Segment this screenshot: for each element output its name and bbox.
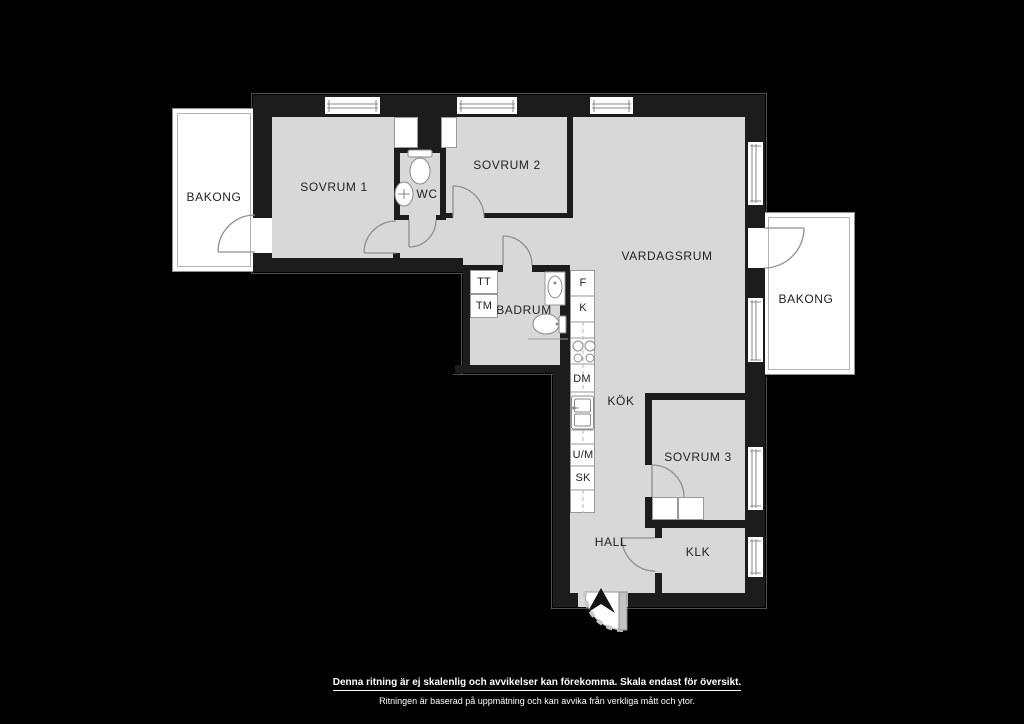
balcony-door-opening [253, 218, 272, 253]
wall [567, 117, 573, 218]
room-label-sovrum1: SOVRUM 1 [300, 180, 367, 194]
appliance-label-tm: TM [476, 300, 492, 312]
room-label-wc: WC [416, 187, 437, 201]
room-label-kok: KÖK [607, 394, 634, 408]
wall [436, 215, 446, 220]
wardrobe-box [652, 497, 678, 520]
appliance-label-f: F [580, 277, 587, 289]
room-label-bakong-right: BAKONG [779, 292, 834, 306]
wall [645, 393, 748, 400]
outline [251, 93, 767, 94]
outline [461, 273, 462, 374]
outline [551, 608, 767, 609]
window [748, 142, 763, 205]
wall [553, 373, 570, 607]
wall [253, 258, 463, 272]
appliance-label-um: U/M [573, 449, 594, 461]
wall [645, 393, 652, 465]
wall [645, 520, 748, 528]
room-label-bakong-left: BAKONG [187, 190, 242, 204]
shaft-box [441, 117, 457, 148]
room-label-badrum: BADRUM [496, 303, 552, 317]
room-label-hall: HALL [595, 535, 627, 549]
disclaimer: Denna ritning är ej skalenlig och avvike… [317, 672, 757, 709]
room-label-sovrum3: SOVRUM 3 [664, 450, 731, 464]
room-label-sovrum2: SOVRUM 2 [473, 158, 540, 172]
entrance-opening [578, 593, 628, 607]
wall [394, 148, 446, 153]
wall [560, 265, 570, 373]
outline [551, 374, 552, 609]
wall [394, 215, 409, 220]
appliance-label-k: K [579, 302, 587, 314]
wall [418, 117, 441, 148]
outline [766, 377, 767, 608]
window [457, 97, 517, 114]
window [590, 97, 633, 114]
outline [766, 93, 767, 213]
disclaimer-line1: Denna ritning är ej skalenlig och avvike… [333, 676, 742, 691]
wall [463, 265, 470, 373]
wall [655, 528, 662, 538]
appliance-label-dm: DM [573, 373, 591, 385]
floor-plan: BAKONG SOVRUM 1 WC SOVRUM 2 VARDAGSRUM B… [0, 0, 1024, 724]
outline [251, 273, 463, 274]
wall [394, 148, 400, 220]
wall [455, 365, 570, 373]
room-label-vardagsrum: VARDAGSRUM [621, 249, 712, 263]
window [748, 447, 763, 510]
balcony-door-opening [748, 228, 765, 268]
wardrobe-box [678, 497, 704, 520]
room-label-klk: KLK [686, 545, 710, 559]
shaft-box [394, 117, 418, 148]
wall [484, 213, 573, 218]
window [325, 97, 380, 114]
wall [440, 148, 446, 220]
disclaimer-line2: Ritningen är baserad på uppmätning och k… [379, 696, 695, 706]
wall [446, 213, 453, 218]
window [748, 298, 763, 362]
wall [655, 573, 662, 593]
outline [453, 374, 553, 375]
appliance-label-sk: SK [575, 472, 590, 484]
wall [393, 253, 400, 272]
appliance-label-tt: TT [477, 276, 491, 288]
window [748, 537, 763, 577]
